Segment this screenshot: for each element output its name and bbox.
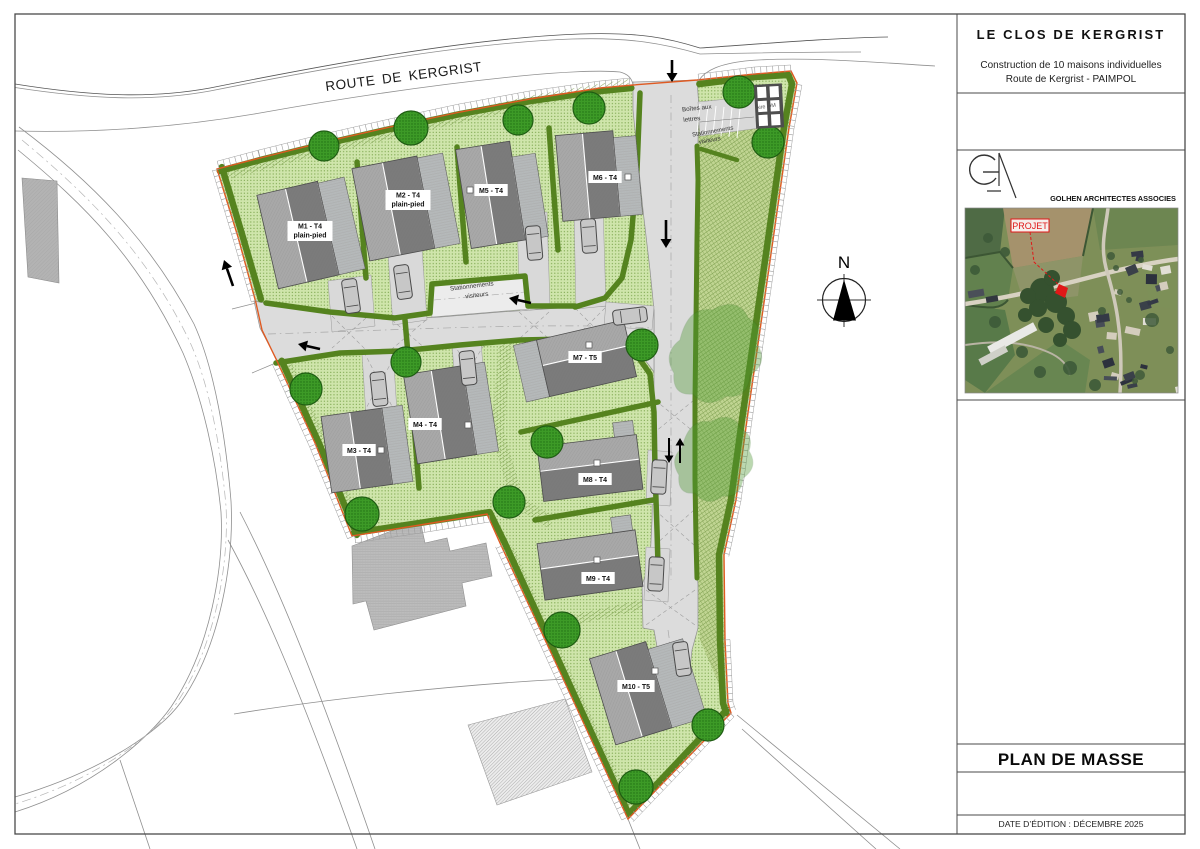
svg-text:M2 - T4: M2 - T4 <box>396 193 420 200</box>
svg-text:M5 - T4: M5 - T4 <box>479 188 503 195</box>
svg-text:plain-pied: plain-pied <box>293 233 326 240</box>
svg-text:GOLHEN ARCHITECTES ASSOCIES: GOLHEN ARCHITECTES ASSOCIES <box>1050 194 1176 203</box>
svg-text:Route de Kergrist - PAIMPOL: Route de Kergrist - PAIMPOL <box>1006 74 1137 85</box>
svg-text:M9 - T4: M9 - T4 <box>586 576 610 583</box>
svg-text:LE CLOS DE KERGRIST: LE CLOS DE KERGRIST <box>977 27 1166 42</box>
svg-text:M1 - T4: M1 - T4 <box>298 224 322 231</box>
svg-text:M7 - T5: M7 - T5 <box>573 355 597 362</box>
svg-text:M3 - T4: M3 - T4 <box>347 448 371 455</box>
svg-text:N: N <box>838 253 850 272</box>
svg-text:Construction de 10 maisons ind: Construction de 10 maisons individuelles <box>980 60 1161 71</box>
svg-text:DATE D’ÉDITION : DÉCEMBRE 2025: DATE D’ÉDITION : DÉCEMBRE 2025 <box>998 819 1143 829</box>
svg-text:M4 - T4: M4 - T4 <box>413 422 437 429</box>
svg-text:PLAN DE MASSE: PLAN DE MASSE <box>998 750 1144 769</box>
svg-text:M10 - T5: M10 - T5 <box>622 684 650 691</box>
svg-text:M6 - T4: M6 - T4 <box>593 175 617 182</box>
svg-text:plain-pied: plain-pied <box>391 202 424 209</box>
svg-text:PROJET: PROJET <box>1012 221 1048 231</box>
svg-text:M8 - T4: M8 - T4 <box>583 477 607 484</box>
